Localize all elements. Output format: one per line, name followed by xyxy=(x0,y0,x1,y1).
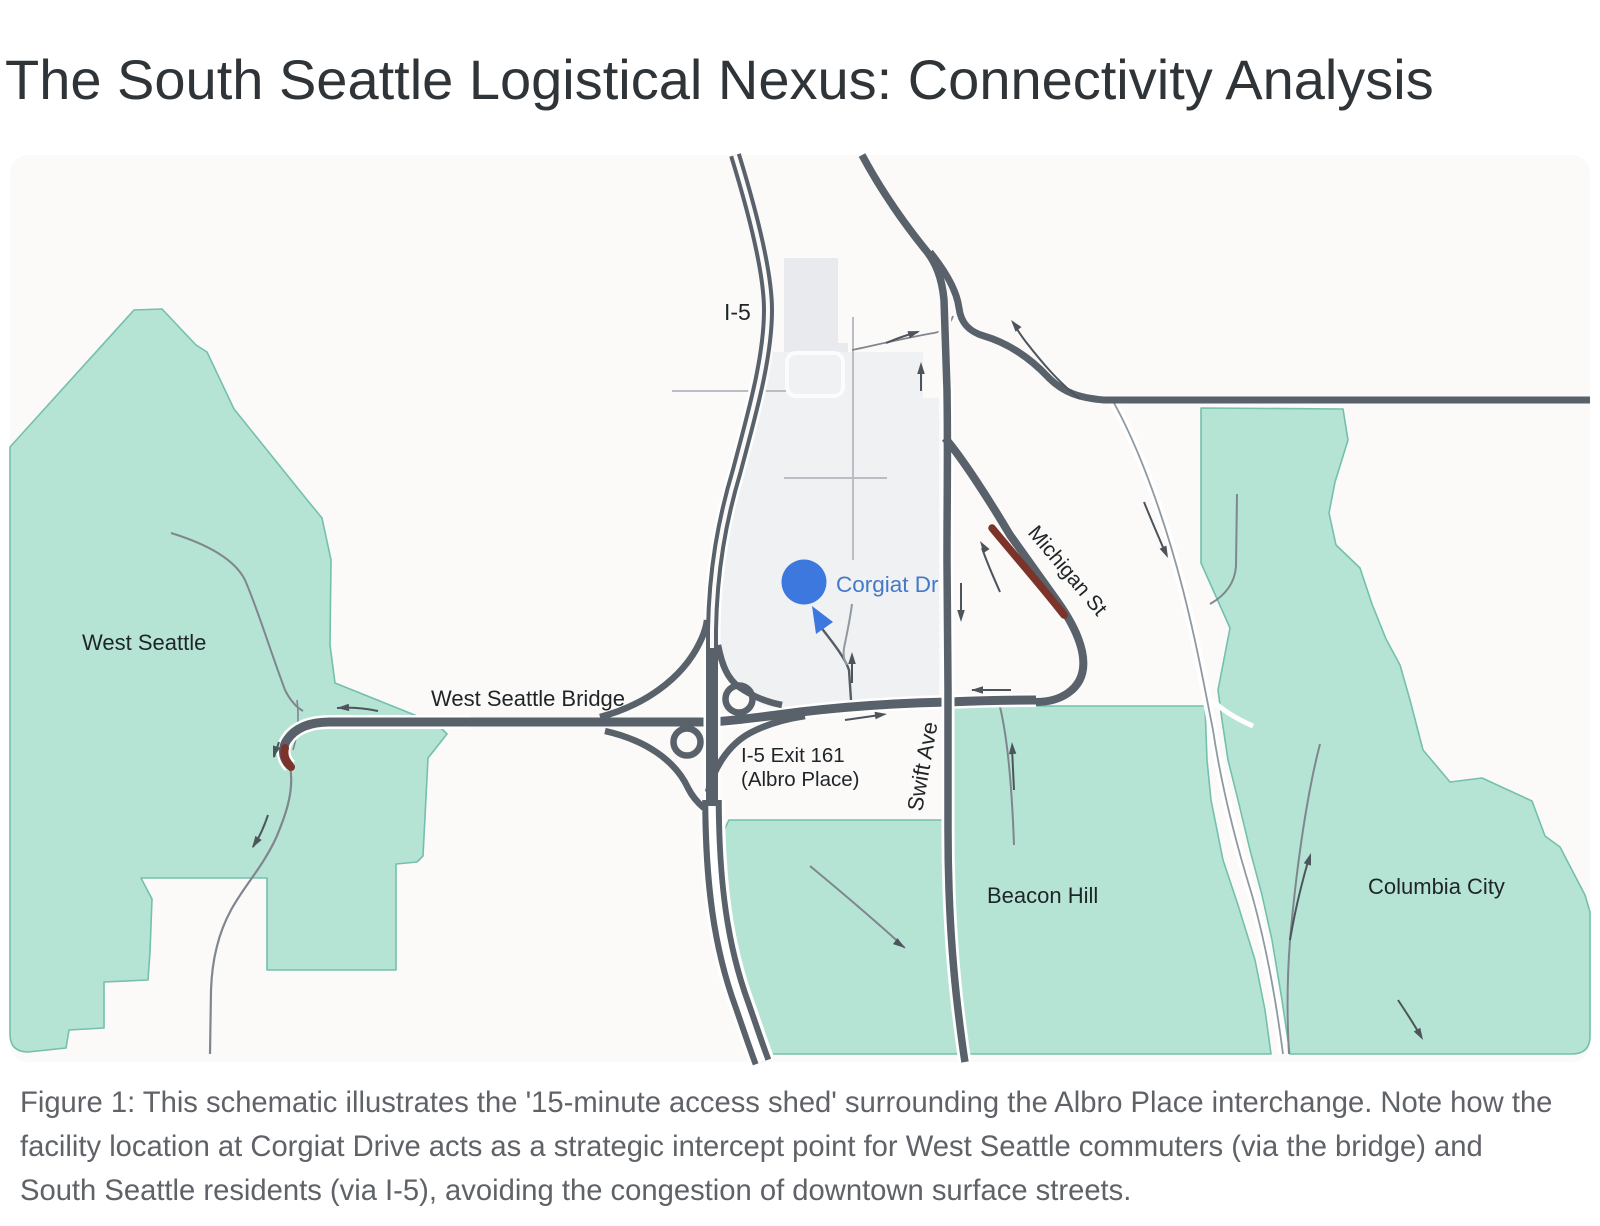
svg-text:Beacon Hill: Beacon Hill xyxy=(987,883,1098,908)
svg-text:Columbia City: Columbia City xyxy=(1368,874,1505,899)
svg-text:facility location at Corgiat D: facility location at Corgiat Drive acts … xyxy=(20,1131,1483,1163)
svg-text:South Seattle residents (via I: South Seattle residents (via I-5), avoid… xyxy=(20,1175,1131,1207)
svg-text:West Seattle Bridge: West Seattle Bridge xyxy=(431,686,625,711)
svg-text:Figure 1: This schematic illus: Figure 1: This schematic illustrates the… xyxy=(20,1087,1552,1119)
svg-text:I-5 Exit 161: I-5 Exit 161 xyxy=(741,744,845,767)
svg-text:I-5: I-5 xyxy=(724,299,751,325)
svg-text:(Albro Place): (Albro Place) xyxy=(741,768,860,791)
svg-text:The South Seattle Logistical N: The South Seattle Logistical Nexus: Conn… xyxy=(5,48,1434,111)
svg-text:West Seattle: West Seattle xyxy=(82,630,206,655)
svg-text:Corgiat Dr: Corgiat Dr xyxy=(836,572,939,597)
